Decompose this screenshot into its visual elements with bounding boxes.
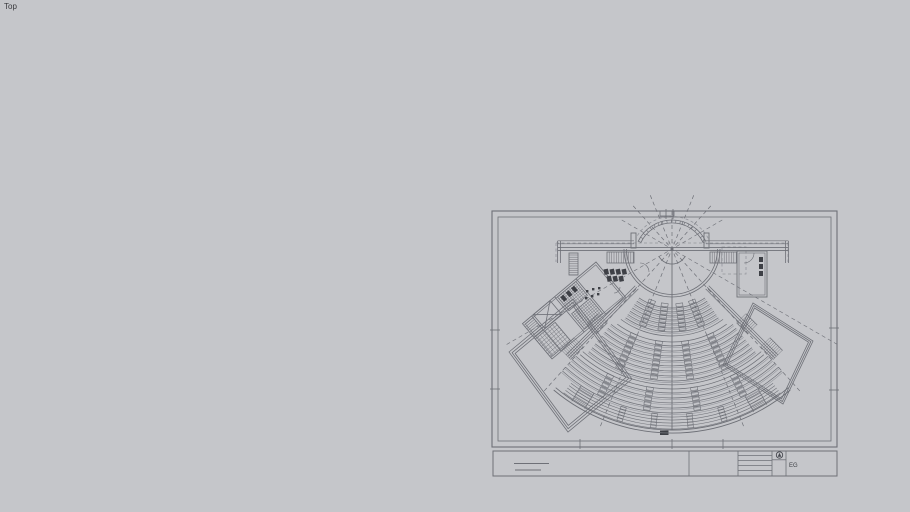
- entry-stair-hatch: [569, 253, 578, 275]
- left-pavilion[interactable]: [509, 299, 632, 432]
- floor-plan[interactable]: [506, 195, 839, 435]
- viewport[interactable]: Top EG: [0, 0, 910, 512]
- title-block[interactable]: EG: [493, 451, 837, 476]
- title-label: EG: [789, 463, 798, 469]
- drawing-canvas[interactable]: EG: [0, 0, 910, 512]
